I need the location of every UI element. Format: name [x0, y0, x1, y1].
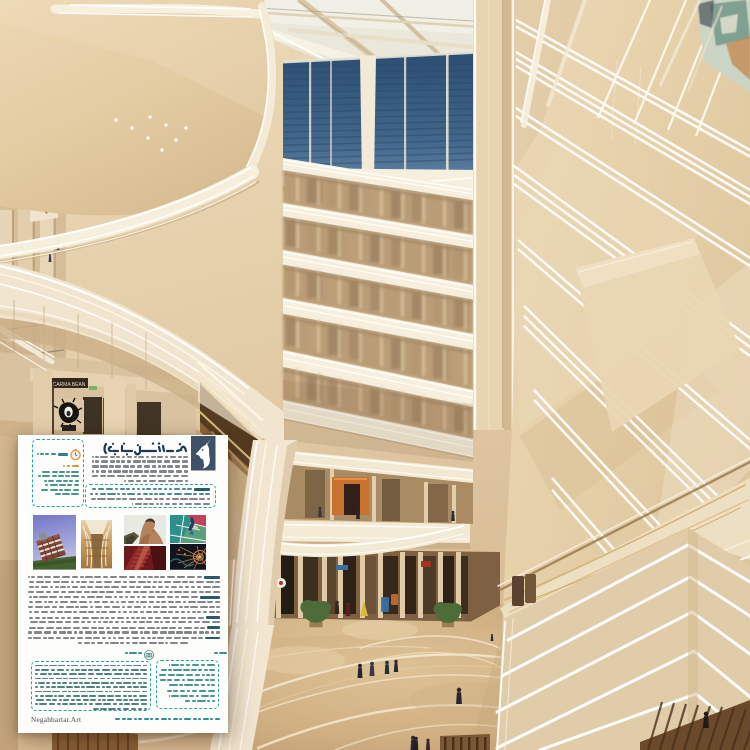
- svg-text:CARMA BEAN: CARMA BEAN: [53, 382, 86, 388]
